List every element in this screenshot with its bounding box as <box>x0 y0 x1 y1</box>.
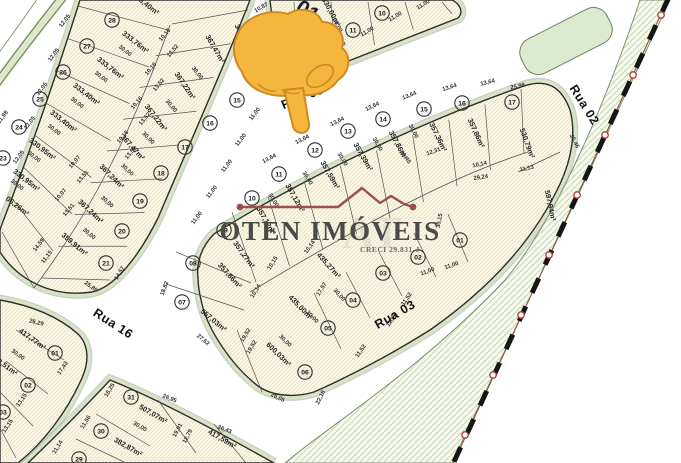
lot-number: 19 <box>136 198 144 205</box>
measurement-label: 13,64 <box>262 153 278 166</box>
lot-number: 25 <box>36 96 44 103</box>
boundary-survey-node <box>602 132 608 138</box>
lot-number: 21 <box>102 260 110 267</box>
lot-number: 18 <box>157 170 165 177</box>
lot-number: 02 <box>24 382 32 389</box>
lot-number: 17 <box>508 99 516 106</box>
lot-number: 15 <box>233 97 241 104</box>
boundary-survey-node <box>462 432 468 438</box>
lot-number: 16 <box>206 120 214 127</box>
measurement-label: 27,62 <box>195 333 211 348</box>
green-island <box>515 2 618 79</box>
boundary-survey-node <box>574 192 580 198</box>
lot-number: 16 <box>458 100 466 107</box>
lot-number: 17 <box>181 144 189 151</box>
lot-number: 30 <box>97 428 105 435</box>
watermark-creci: CRECI 29.831-J <box>360 245 420 254</box>
boundary-survey-node <box>658 12 664 18</box>
lot-marker-quadra-oeste-15[interactable]: 15 <box>230 93 244 107</box>
lot-marker-quadra-central-11[interactable]: 11 <box>272 167 286 181</box>
street-name-rua-16: Rua 16 <box>91 306 136 342</box>
boundary-survey-node <box>546 252 552 258</box>
measurement-label: 13,64 <box>295 134 312 146</box>
measurement-label: 11,00 <box>234 132 248 148</box>
lot-marker-quadra-central-10[interactable]: 10 <box>245 191 259 205</box>
lot-marker-quadra-oeste-23[interactable]: 23 <box>0 151 10 165</box>
lot-marker-quadra-central-07[interactable]: 07 <box>175 295 189 309</box>
lot-number: 14 <box>379 116 387 123</box>
boundary-survey-node <box>630 72 636 78</box>
lot-number: 05 <box>324 325 332 332</box>
lot-marker-quadra-oeste-16[interactable]: 16 <box>203 116 217 130</box>
subdivision-map-page: 28333,76m²27333,76m²26333,40m²25333,40m²… <box>0 0 681 463</box>
lot-number: 27 <box>83 43 91 50</box>
lot-number: 06 <box>301 369 309 376</box>
measurement-label: 13,64 <box>330 116 347 128</box>
lot-number: 12 <box>311 147 319 154</box>
lot-number: 31 <box>127 394 135 401</box>
watermark-brand: OTEN IMÓVEIS <box>219 216 440 246</box>
lot-number: 11 <box>349 27 356 34</box>
boundary-survey-node <box>518 312 524 318</box>
boundary-survey-node <box>490 372 496 378</box>
lot-number: 03 <box>379 270 387 277</box>
measurement-label: 13,64 <box>480 78 496 88</box>
measurement-label: 18,82 <box>160 280 171 297</box>
lot-number: 23 <box>0 155 7 162</box>
lot-number: 29 <box>75 456 83 463</box>
lot-number: 15 <box>420 106 428 113</box>
lot-number: 07 <box>178 299 186 306</box>
lot-number: 01 <box>456 237 464 244</box>
measurement-label: 11,00 <box>205 184 219 200</box>
lot-number: 01 <box>51 350 59 357</box>
measurement-label: 13,64 <box>442 83 459 93</box>
subdivision-map: 28333,76m²27333,76m²26333,40m²25333,40m²… <box>0 0 681 463</box>
watermark-roofline-node <box>237 204 244 211</box>
lot-number: 24 <box>15 124 23 131</box>
lot-number: 20 <box>118 228 126 235</box>
lot-number: 11 <box>275 171 282 178</box>
lot-number: 13 <box>344 128 352 135</box>
measurement-label: 11,00 <box>248 106 262 122</box>
lot-number: 26 <box>59 69 67 76</box>
measurement-label: 11,00 <box>220 158 234 174</box>
lot-marker-quadra-central-15[interactable]: 15 <box>417 102 431 116</box>
lot-marker-quadra-central-14[interactable]: 14 <box>376 112 390 126</box>
lot-number: 03 <box>0 409 7 416</box>
measurement-label: 11,00 <box>190 210 204 226</box>
measurement-label: 13,64 <box>402 90 419 101</box>
lot-number: 04 <box>349 297 357 304</box>
measurement-label: 13,64 <box>365 101 382 113</box>
measurement-label: 11,98 <box>0 109 10 125</box>
lot-number: 10 <box>378 10 386 17</box>
lot-marker-quadra-central-13[interactable]: 13 <box>341 124 355 138</box>
lot-marker-quadra-central-12[interactable]: 12 <box>308 143 322 157</box>
lot-number: 08 <box>189 260 197 267</box>
watermark-roofline-node <box>410 204 417 211</box>
lot-number: 02 <box>414 254 422 261</box>
lot-number: 10 <box>248 195 256 202</box>
lot-number: 28 <box>108 17 116 24</box>
